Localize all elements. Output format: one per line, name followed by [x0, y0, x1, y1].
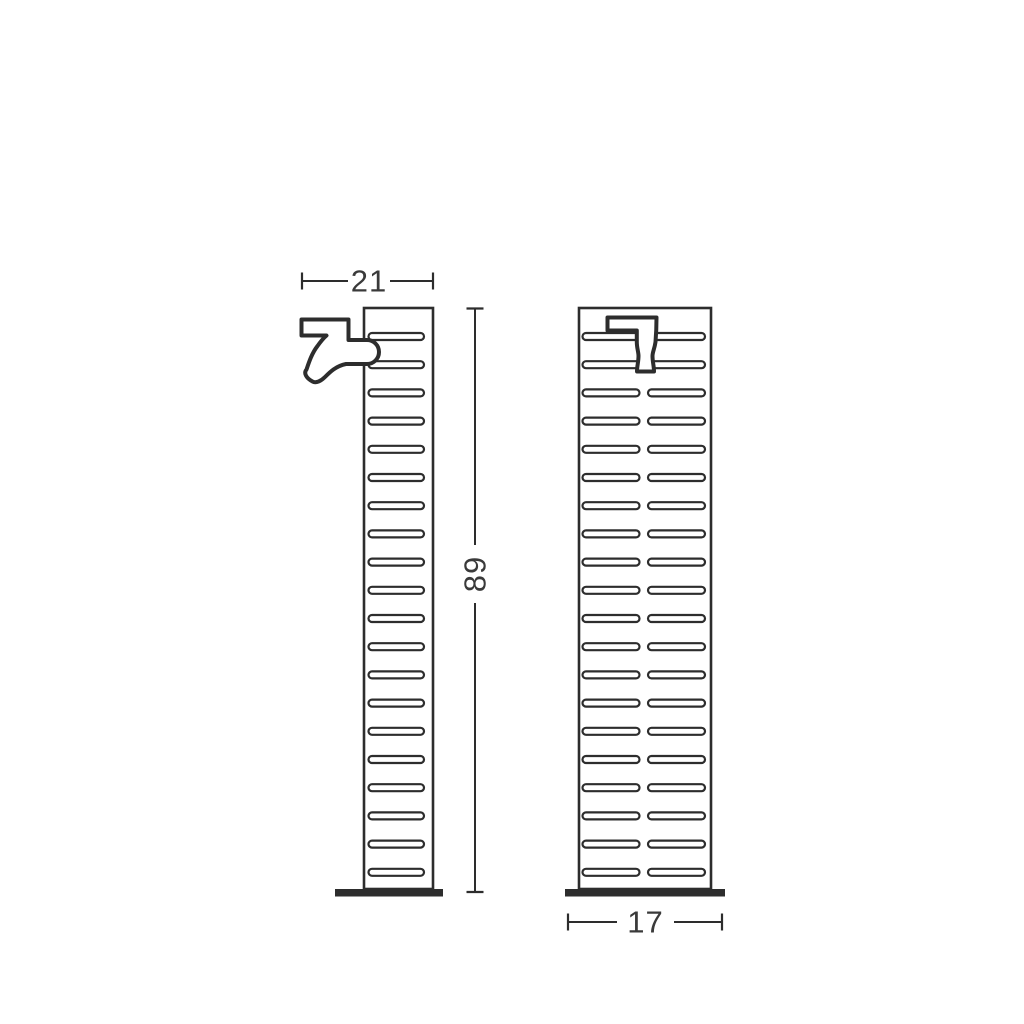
- slat-right: [648, 812, 705, 819]
- dimension-width-bottom: 17: [568, 905, 722, 940]
- slat: [369, 869, 425, 876]
- slat-right: [648, 841, 705, 848]
- dimension-height-right: 89: [458, 309, 493, 893]
- slat-left: [583, 615, 640, 622]
- slat: [369, 784, 425, 791]
- dimension-label-depth-top: 21: [351, 264, 387, 299]
- slat-left: [583, 700, 640, 707]
- slat: [369, 361, 425, 368]
- slat: [369, 474, 425, 481]
- slat-left: [583, 474, 640, 481]
- slat-right: [648, 784, 705, 791]
- slat-right: [648, 869, 705, 876]
- front-view: [565, 308, 725, 897]
- side-view: [302, 308, 444, 897]
- slat-left: [583, 728, 640, 735]
- slat: [369, 700, 425, 707]
- slat: [369, 389, 425, 396]
- slat-right: [648, 418, 705, 425]
- slat: [369, 812, 425, 819]
- slat-left: [583, 841, 640, 848]
- slat-left: [583, 756, 640, 763]
- slat: [369, 530, 425, 537]
- slat-left: [583, 671, 640, 678]
- technical-drawing-canvas: 218917: [0, 0, 1024, 1024]
- front-base-plate: [565, 889, 725, 897]
- slat-left: [583, 530, 640, 537]
- slat: [369, 756, 425, 763]
- slat: [369, 333, 425, 340]
- slat: [369, 728, 425, 735]
- dimension-depth-top: 21: [302, 264, 433, 299]
- dimension-label-width-bottom: 17: [627, 905, 663, 940]
- slat-right: [648, 530, 705, 537]
- slat-left: [583, 784, 640, 791]
- slat-right: [648, 559, 705, 566]
- slat-left: [583, 587, 640, 594]
- slat: [369, 587, 425, 594]
- slat: [369, 671, 425, 678]
- fountain-dimension-diagram: 218917: [0, 0, 1024, 1024]
- slat-right: [648, 615, 705, 622]
- slat-right: [648, 671, 705, 678]
- slat-left: [583, 643, 640, 650]
- slat-right: [648, 728, 705, 735]
- slat: [369, 502, 425, 509]
- slat-right: [648, 474, 705, 481]
- slat-left: [583, 389, 640, 396]
- side-base-plate: [335, 889, 443, 897]
- slat-right: [648, 587, 705, 594]
- slat: [369, 615, 425, 622]
- slat-right: [648, 389, 705, 396]
- slat-right: [648, 446, 705, 453]
- slat: [369, 446, 425, 453]
- slat-left: [583, 446, 640, 453]
- slat: [369, 643, 425, 650]
- slat-left: [583, 418, 640, 425]
- slat-left: [583, 502, 640, 509]
- slat-right: [648, 643, 705, 650]
- slat: [369, 841, 425, 848]
- dimension-label-height-right: 89: [458, 556, 493, 592]
- slat-right: [648, 756, 705, 763]
- slat-left: [583, 559, 640, 566]
- slat-right: [648, 502, 705, 509]
- slat-left: [583, 869, 640, 876]
- slat-left: [583, 812, 640, 819]
- slat: [369, 559, 425, 566]
- slat: [369, 418, 425, 425]
- slat-right: [648, 700, 705, 707]
